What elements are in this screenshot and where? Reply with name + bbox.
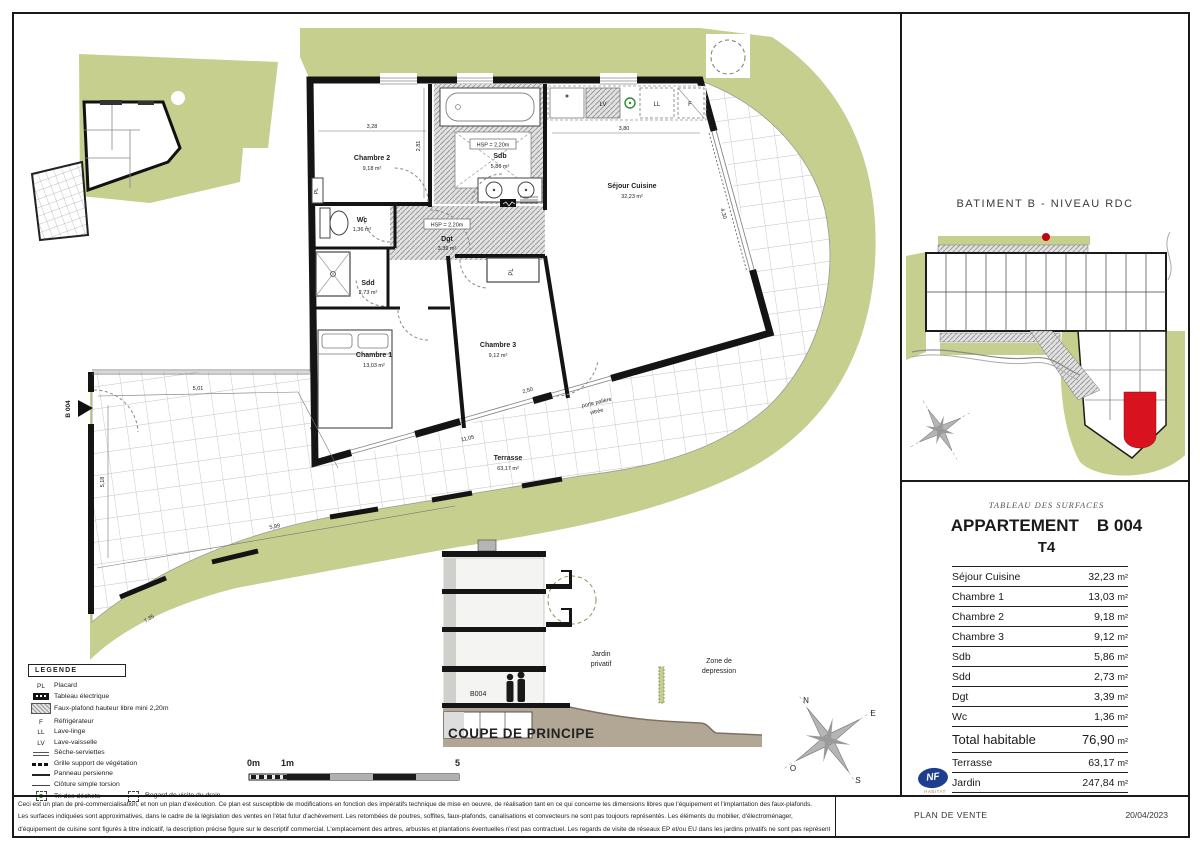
plan-de-vente-sheet: B 004 xyxy=(0,0,1200,848)
apartment-type: T4 xyxy=(905,539,1188,556)
legend-item: Tableau électrique xyxy=(28,693,338,702)
table-row: Terrasse63,17m² xyxy=(952,753,1128,773)
depression-zone-label: Zone de xyxy=(706,658,732,665)
document-type-label: PLAN DE VENTE xyxy=(914,810,988,820)
room-sdb: Sdb xyxy=(493,153,506,160)
table-row: Dgt3,39m² xyxy=(952,687,1128,707)
svg-text:5: 5 xyxy=(455,758,460,768)
compass-rose: N E O S xyxy=(770,680,890,795)
footer-divider xyxy=(835,797,836,838)
svg-text:privatif: privatif xyxy=(591,661,612,668)
toilet-icon xyxy=(320,208,348,238)
kitchen-units: LV LL F xyxy=(548,86,706,120)
svg-text:2,81: 2,81 xyxy=(416,141,422,152)
svg-text:3,80: 3,80 xyxy=(619,126,630,132)
bed-icon xyxy=(318,330,392,428)
false-ceiling-icon xyxy=(31,703,51,714)
placard-chambre3: PL xyxy=(487,258,539,282)
legend-item: LVLave-vaisselle xyxy=(28,739,338,748)
svg-text:3,39 m²: 3,39 m² xyxy=(438,246,457,252)
electrical-panel-icon xyxy=(500,199,516,207)
bathtub-icon xyxy=(440,88,540,126)
section-drawing: B004 Jardin privatif Zone de depression … xyxy=(430,538,762,748)
room-chambre1: Chambre 1 xyxy=(356,352,392,359)
table-row: Chambre 29,18m² xyxy=(952,607,1128,627)
table-row: Séjour Cuisine32,23m² xyxy=(952,567,1128,587)
fence-icon xyxy=(32,785,50,786)
svg-text:PL: PL xyxy=(509,268,515,276)
surfaces-table: Séjour Cuisine32,23m² Chambre 113,03m² C… xyxy=(952,566,1128,793)
svg-text:5,86 m²: 5,86 m² xyxy=(491,164,510,170)
entrance-marker: B 004 xyxy=(65,400,93,418)
ll-label: LL xyxy=(654,102,661,108)
table-row: Chambre 39,12m² xyxy=(952,627,1128,647)
section-title: COUPE DE PRINCIPE xyxy=(448,726,595,741)
table-row: Wc1,36m² xyxy=(952,707,1128,727)
svg-text:PL: PL xyxy=(314,188,320,194)
towel-radiator-icon xyxy=(33,750,49,756)
svg-text:5,18: 5,18 xyxy=(100,477,106,488)
legend-item: FRéfrigérateur xyxy=(28,718,338,727)
svg-text:9,12 m²: 9,12 m² xyxy=(489,353,508,359)
surfaces-panel: TABLEAU DES SURFACES APPARTEMENT B 004 T… xyxy=(905,482,1188,793)
svg-text:HSP = 2,20m: HSP = 2,20m xyxy=(431,223,464,229)
fridge-label: F xyxy=(688,102,692,108)
legend-item: Panneau persienne xyxy=(28,770,338,779)
legend-item: Faux-plafond hauteur libre mini 2,20m xyxy=(28,703,338,716)
location-dot xyxy=(1042,233,1050,241)
svg-text:3,28: 3,28 xyxy=(367,124,378,130)
site-plan-title: BATIMENT B - NIVEAU RDC xyxy=(902,198,1188,210)
room-dgt: Dgt xyxy=(441,236,453,243)
document-date: 20/04/2023 xyxy=(1088,810,1168,820)
svg-text:2,73 m²: 2,73 m² xyxy=(359,290,378,296)
svg-text:depression: depression xyxy=(702,668,736,675)
room-sejour: Séjour Cuisine xyxy=(607,183,656,190)
legend-item: Clôture simple torsion xyxy=(28,781,338,790)
svg-text:63,17 m²: 63,17 m² xyxy=(497,466,519,472)
room-terrasse: Terrasse xyxy=(494,455,523,462)
room-chambre2: Chambre 2 xyxy=(354,155,390,162)
legend-item: Grille support de végétation xyxy=(28,760,338,769)
section-unit-label: B004 xyxy=(470,691,486,698)
nf-habitat-logo: NF HABITAT xyxy=(918,768,952,794)
garden-label: Jardin xyxy=(591,651,610,658)
highlighted-unit xyxy=(1124,392,1156,448)
lv-label: LV xyxy=(600,102,607,108)
disclaimer-text: Ceci est un plan de pré-commercialisatio… xyxy=(18,799,830,836)
vegetation-grid-icon xyxy=(659,667,664,703)
legend-item: LLLave-linge xyxy=(28,728,338,737)
room-chambre3: Chambre 3 xyxy=(480,342,516,349)
shutter-panel-icon xyxy=(32,774,50,777)
svg-text:13,03 m²: 13,03 m² xyxy=(363,363,385,369)
svg-text:9,18 m²: 9,18 m² xyxy=(363,166,382,172)
table-row: Chambre 113,03m² xyxy=(952,587,1128,607)
table-row: Sdd2,73m² xyxy=(952,667,1128,687)
table-row: Sdb5,86m² xyxy=(952,647,1128,667)
electrical-panel-icon xyxy=(33,693,49,700)
vegetation-grid-icon xyxy=(32,763,50,766)
legend-item: PLPlacard xyxy=(28,682,338,691)
placard-chambre2: PL xyxy=(312,178,323,203)
hsp-note-sdb: HSP = 2,20m xyxy=(470,139,516,149)
site-plan xyxy=(905,220,1188,478)
compass-s: S xyxy=(855,776,860,785)
apartment-title: APPARTEMENT B 004 xyxy=(905,516,1188,536)
svg-text:5,01: 5,01 xyxy=(193,386,204,392)
svg-text:HSP = 2,20m: HSP = 2,20m xyxy=(477,143,510,149)
mini-unit-plan xyxy=(32,54,278,240)
compass-n: N xyxy=(803,696,809,705)
svg-text:32,23 m²: 32,23 m² xyxy=(621,194,643,200)
compass-e: E xyxy=(870,709,875,718)
site-compass-icon xyxy=(905,384,986,477)
surfaces-header: TABLEAU DES SURFACES xyxy=(905,500,1188,510)
legend-item: Sèche-serviettes xyxy=(28,749,338,758)
table-row-total: Total habitable76,90m² xyxy=(952,727,1128,753)
compass-o: O xyxy=(790,764,796,773)
room-sdd: Sdd xyxy=(361,280,374,287)
legend: LEGENDE PLPlacard Tableau électrique Fau… xyxy=(28,664,338,805)
dgt-hatch xyxy=(390,206,545,260)
hsp-note-dgt: HSP = 2,20m xyxy=(424,219,470,229)
footer: Ceci est un plan de pré-commercialisatio… xyxy=(12,795,1188,838)
entrance-label: B 004 xyxy=(65,400,72,418)
double-sink-icon xyxy=(478,178,542,202)
table-row: Jardin247,84m² xyxy=(952,773,1128,793)
svg-text:1,36 m²: 1,36 m² xyxy=(353,227,372,233)
shower-icon xyxy=(316,252,350,296)
room-wc: Wc xyxy=(357,217,368,224)
legend-header: LEGENDE xyxy=(28,664,126,677)
panel-divider-vertical xyxy=(900,12,902,795)
